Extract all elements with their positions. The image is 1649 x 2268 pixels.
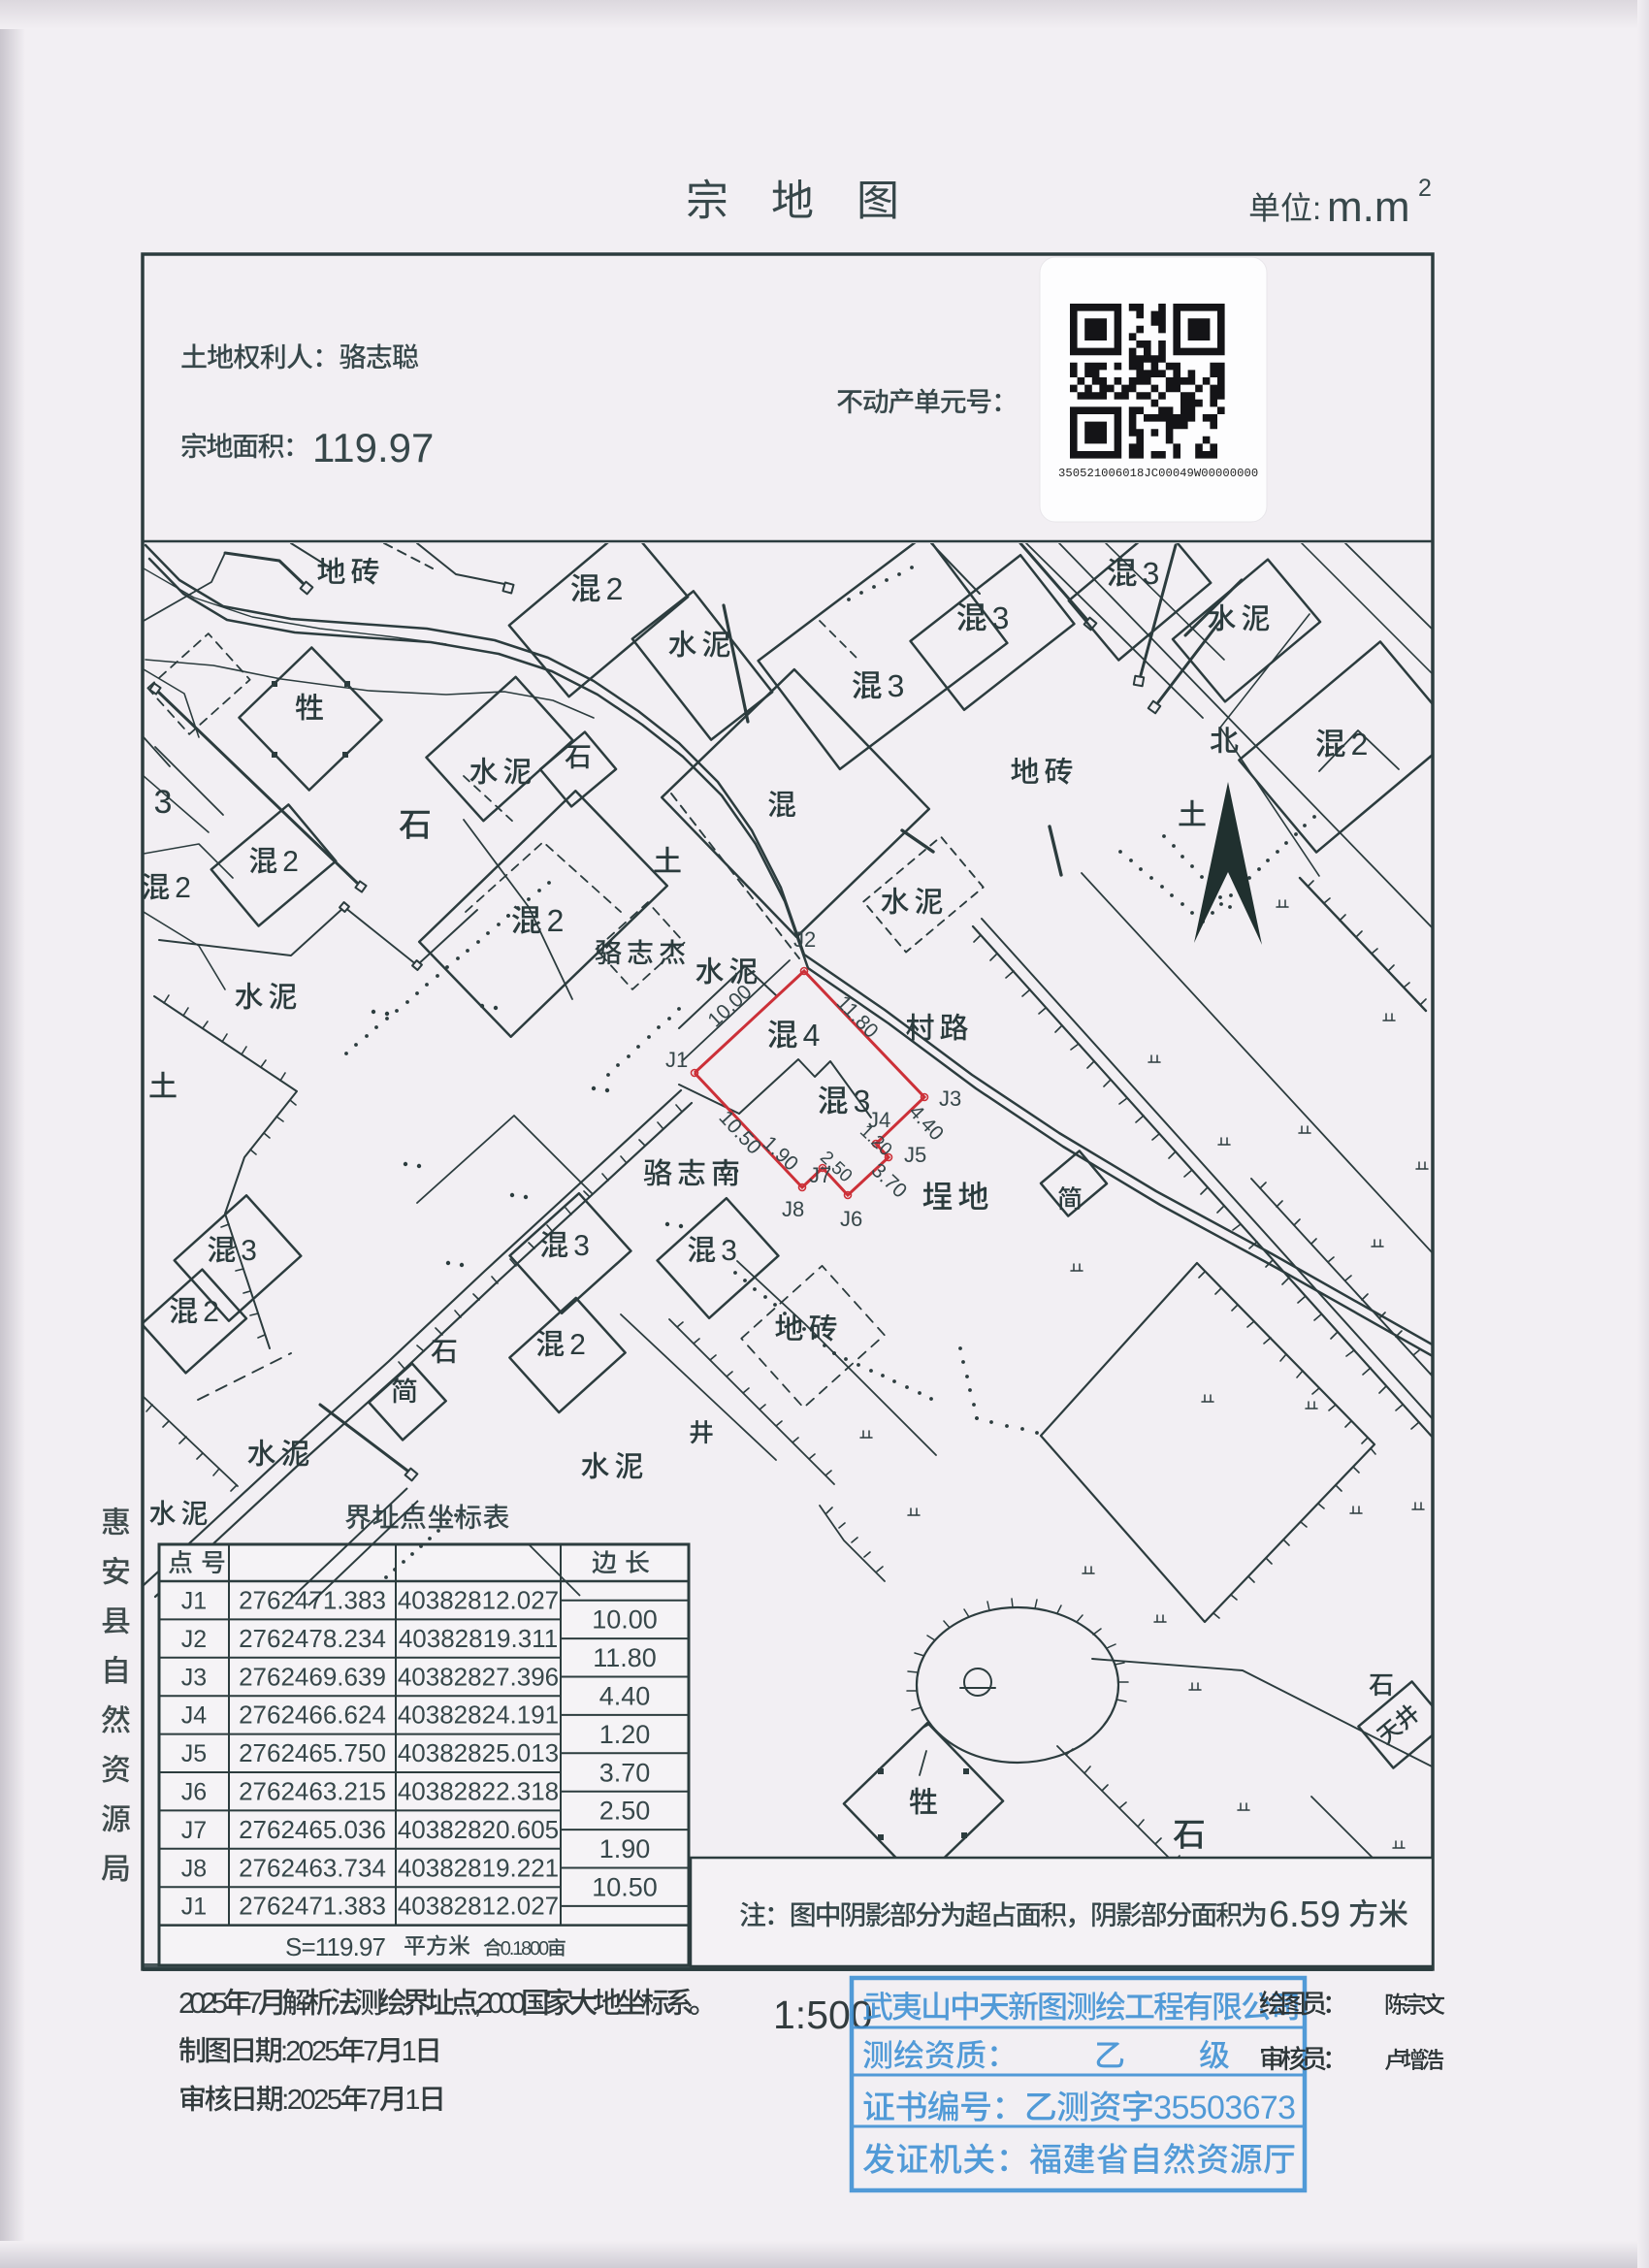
svg-text:2: 2 <box>1418 175 1432 202</box>
svg-text:2762471.383: 2762471.383 <box>239 1892 386 1921</box>
svg-text:2762463.215: 2762463.215 <box>239 1777 386 1806</box>
svg-text:J1: J1 <box>181 1894 207 1921</box>
svg-text:40382820.605: 40382820.605 <box>398 1815 559 1844</box>
svg-text:119.97: 119.97 <box>312 425 434 470</box>
svg-text:J7: J7 <box>181 1817 207 1844</box>
svg-text:40382824.191: 40382824.191 <box>398 1701 559 1730</box>
svg-text:J6: J6 <box>840 1207 862 1231</box>
svg-text:J2: J2 <box>181 1626 207 1653</box>
svg-text:1.90: 1.90 <box>599 1834 651 1863</box>
svg-text:2762465.036: 2762465.036 <box>239 1815 386 1844</box>
svg-text:40382825.013: 40382825.013 <box>398 1738 559 1767</box>
svg-text:40382812.027: 40382812.027 <box>398 1892 559 1921</box>
svg-text:2.50: 2.50 <box>599 1797 651 1826</box>
svg-text:J5: J5 <box>181 1740 207 1767</box>
svg-text:3.70: 3.70 <box>599 1758 651 1787</box>
svg-text:J1: J1 <box>181 1588 207 1615</box>
svg-text:1:500: 1:500 <box>773 1993 873 2037</box>
svg-text:S=119.97: S=119.97 <box>285 1932 386 1961</box>
svg-text:3: 3 <box>154 784 173 821</box>
svg-text:1.20: 1.20 <box>599 1720 651 1749</box>
svg-text:2762465.750: 2762465.750 <box>239 1738 386 1767</box>
svg-text:40382827.396: 40382827.396 <box>398 1662 559 1691</box>
svg-text:J3: J3 <box>181 1664 207 1691</box>
svg-text:J8: J8 <box>782 1197 804 1221</box>
svg-text:40382819.221: 40382819.221 <box>398 1853 559 1882</box>
svg-text:2762471.383: 2762471.383 <box>239 1586 386 1615</box>
svg-text:m.m: m.m <box>1327 183 1410 231</box>
svg-text:4.40: 4.40 <box>599 1682 651 1711</box>
svg-text:J8: J8 <box>181 1855 207 1882</box>
svg-text:40382812.027: 40382812.027 <box>398 1586 559 1615</box>
svg-text:350521006018JC00049W00000000: 350521006018JC00049W00000000 <box>1058 467 1258 480</box>
svg-text:J1: J1 <box>665 1048 688 1072</box>
svg-text:2762469.639: 2762469.639 <box>239 1662 386 1691</box>
svg-text:40382819.311: 40382819.311 <box>399 1624 558 1653</box>
svg-text:2762463.734: 2762463.734 <box>239 1853 386 1882</box>
svg-text:10.50: 10.50 <box>592 1873 658 1902</box>
svg-text:40382822.318: 40382822.318 <box>398 1777 559 1806</box>
svg-text:6.59: 6.59 <box>1269 1895 1341 1935</box>
svg-text:J3: J3 <box>939 1086 961 1111</box>
svg-text:J2: J2 <box>793 927 816 952</box>
svg-text:J5: J5 <box>904 1143 926 1167</box>
svg-text:2762466.624: 2762466.624 <box>239 1701 386 1730</box>
svg-text:11.80: 11.80 <box>593 1643 657 1672</box>
svg-text:10.00: 10.00 <box>592 1605 658 1635</box>
svg-text:2762478.234: 2762478.234 <box>239 1624 386 1653</box>
svg-text:J4: J4 <box>181 1702 208 1730</box>
svg-text:J6: J6 <box>181 1779 207 1806</box>
